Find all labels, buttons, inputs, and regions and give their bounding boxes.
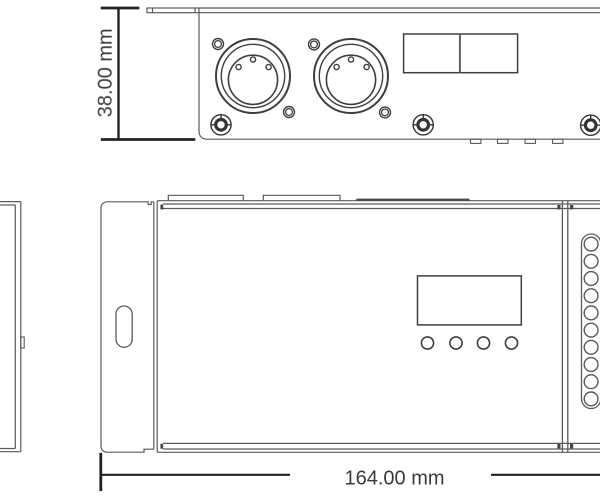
svg-text:38.00 mm: 38.00 mm bbox=[95, 28, 117, 117]
svg-text:164.00 mm: 164.00 mm bbox=[344, 468, 444, 490]
